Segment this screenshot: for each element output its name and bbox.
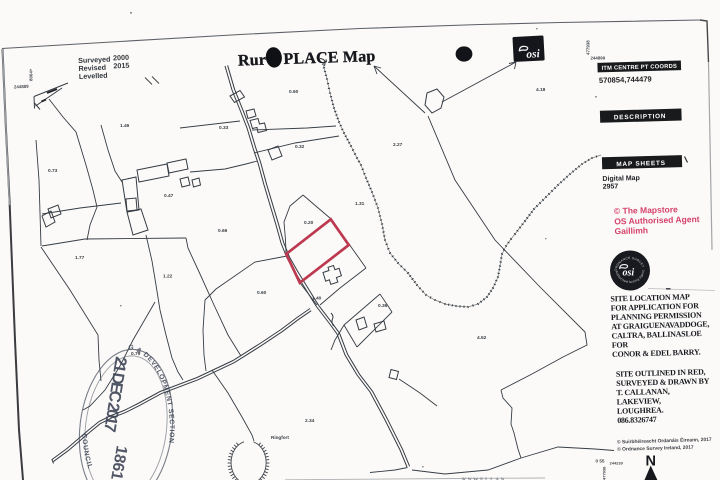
svg-text:0 55: 0 55 (596, 459, 605, 464)
svg-text:0.32: 0.32 (295, 144, 305, 150)
svg-text:T. CALLANAN,: T. CALLANAN, (616, 387, 670, 397)
svg-text:Rur: Rur (238, 52, 267, 70)
svg-text:0.47: 0.47 (164, 193, 174, 199)
svg-text:osi: osi (526, 48, 541, 61)
svg-text:4.52: 4.52 (477, 335, 487, 341)
svg-text:1.77: 1.77 (75, 255, 85, 261)
svg-text:Gaillimh: Gaillimh (614, 225, 648, 236)
svg-text:244899: 244899 (591, 56, 606, 61)
svg-text:0.20: 0.20 (304, 220, 314, 226)
svg-text:2.27: 2.27 (393, 142, 403, 148)
svg-text:244239: 244239 (610, 461, 624, 466)
svg-text:2957: 2957 (603, 183, 619, 190)
svg-text:4.18: 4.18 (536, 87, 546, 93)
svg-text:DESCRIPTION: DESCRIPTION (614, 113, 667, 121)
svg-text:8004+: 8004+ (29, 68, 34, 81)
svg-text:0.60: 0.60 (257, 290, 267, 296)
svg-text:1.22: 1.22 (163, 274, 173, 280)
svg-text:244889: 244889 (14, 84, 29, 90)
svg-text:0.73: 0.73 (48, 168, 58, 174)
svg-text:477938: 477938 (602, 466, 607, 480)
svg-text:PLACE Map: PLACE Map (283, 48, 376, 68)
svg-text:0.60: 0.60 (289, 89, 299, 95)
svg-text:Ringfort: Ringfort (271, 435, 289, 440)
svg-text:MAP SHEETS: MAP SHEETS (616, 160, 666, 168)
svg-text:1.40: 1.40 (312, 296, 322, 302)
svg-text:1.31: 1.31 (355, 201, 365, 207)
svg-text:0.36: 0.36 (378, 303, 388, 309)
svg-text:FOR: FOR (612, 340, 629, 349)
svg-text:Digital Map: Digital Map (602, 175, 640, 183)
svg-text:LOUGHREA.: LOUGHREA. (617, 405, 664, 415)
svg-text:2015: 2015 (113, 61, 129, 71)
svg-text:086.8326747: 086.8326747 (617, 415, 657, 425)
svg-text:0.66: 0.66 (218, 228, 228, 234)
svg-text:570854,744479: 570854,744479 (599, 75, 652, 85)
svg-text:osi: osi (623, 268, 635, 279)
svg-text:2.34: 2.34 (305, 418, 315, 424)
svg-text:1.46: 1.46 (120, 123, 130, 129)
svg-text:477938: 477938 (586, 40, 591, 55)
svg-text:0.33: 0.33 (219, 125, 229, 131)
svg-text:Levelled: Levelled (79, 71, 108, 81)
